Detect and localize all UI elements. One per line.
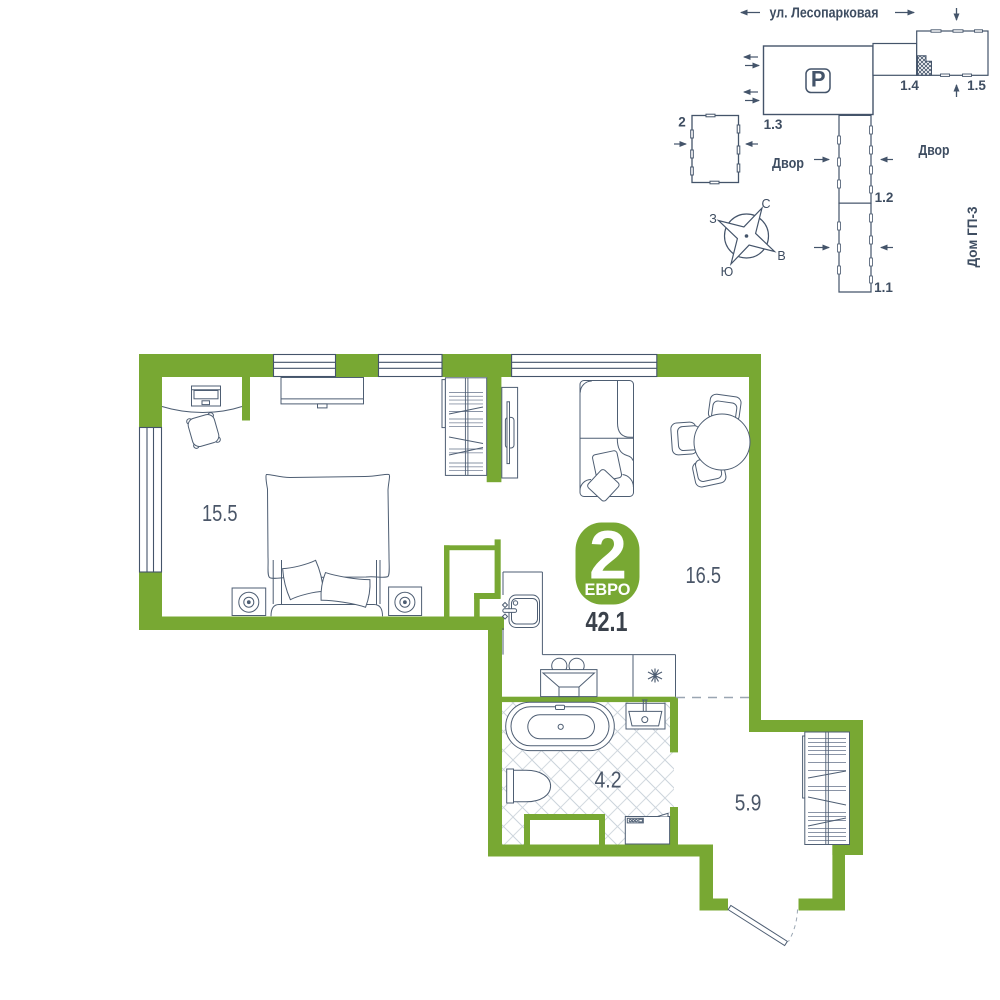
svg-text:1.4: 1.4 bbox=[900, 78, 919, 93]
svg-text:P: P bbox=[811, 67, 826, 92]
svg-text:Дом ГП-3: Дом ГП-3 bbox=[965, 206, 980, 267]
svg-text:С: С bbox=[761, 197, 770, 211]
svg-text:ЕВРО: ЕВРО bbox=[585, 580, 631, 599]
svg-text:5.9: 5.9 bbox=[735, 790, 762, 816]
svg-text:42.1: 42.1 bbox=[586, 606, 628, 637]
svg-text:Двор: Двор bbox=[772, 156, 804, 172]
svg-text:15.5: 15.5 bbox=[202, 500, 238, 526]
svg-text:Двор: Двор bbox=[919, 143, 950, 159]
svg-text:ул. Лесопарковая: ул. Лесопарковая bbox=[770, 6, 879, 22]
svg-text:1.2: 1.2 bbox=[875, 190, 894, 205]
svg-text:16.5: 16.5 bbox=[686, 562, 722, 588]
svg-text:З: З bbox=[709, 212, 717, 226]
svg-text:1.1: 1.1 bbox=[874, 280, 893, 295]
svg-text:1.5: 1.5 bbox=[967, 78, 986, 93]
svg-text:4.2: 4.2 bbox=[595, 767, 622, 793]
svg-text:1.3: 1.3 bbox=[764, 117, 783, 132]
svg-text:Ю: Ю bbox=[721, 265, 734, 279]
svg-text:В: В bbox=[777, 249, 785, 263]
svg-text:2: 2 bbox=[678, 115, 686, 130]
